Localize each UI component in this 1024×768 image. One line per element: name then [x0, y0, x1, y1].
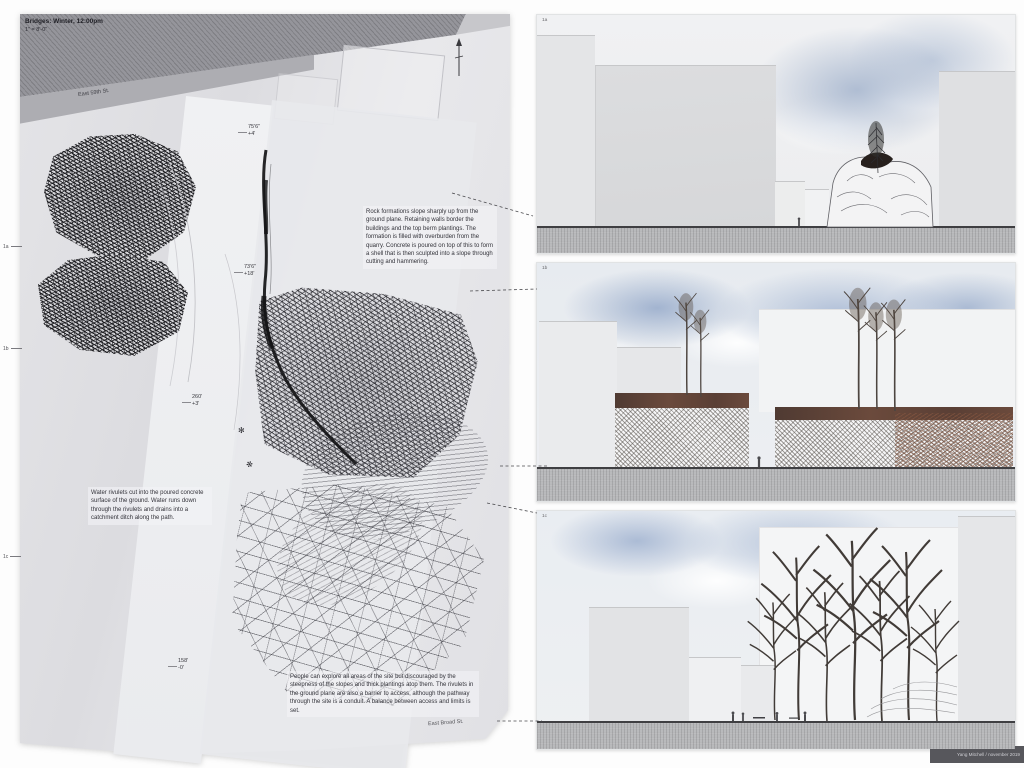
site-plan-sheet: Bridges: Winter, 12:00pm 1" = 8'-0" East… [20, 14, 510, 755]
section-marker-1c: 1c [3, 554, 21, 560]
people-and-benches [732, 711, 807, 721]
section-marker-1a: 1a [3, 244, 22, 250]
winter-trees-and-figures [537, 511, 1015, 749]
north-arrow-icon [455, 38, 463, 76]
panel-label: 1c [542, 514, 547, 519]
tick-line [11, 348, 22, 349]
tick-line [11, 246, 22, 247]
panel-label: 1b [542, 266, 547, 271]
section-panel-1c: 1c [536, 510, 1016, 750]
section-panel-1a: 1a [536, 14, 1016, 254]
panel-label: 1a [542, 18, 547, 23]
stream-and-contours [20, 14, 510, 755]
tick-line [10, 556, 21, 557]
section-marker-1b: 1b [3, 346, 22, 352]
section-panel-1b: 1b [536, 262, 1016, 502]
rock-mound-and-tree [537, 15, 1015, 253]
birch-trees [537, 263, 1015, 501]
